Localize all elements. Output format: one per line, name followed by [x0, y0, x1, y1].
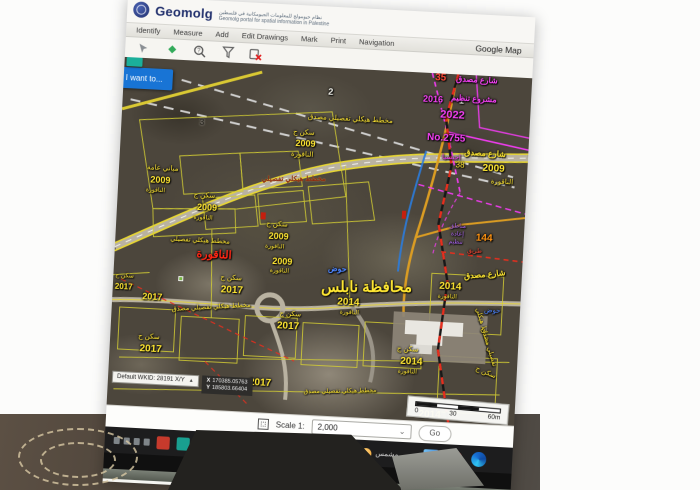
map-home-control[interactable]: [126, 57, 142, 67]
scale-tick: 60m: [487, 413, 500, 421]
red-point-marker: [402, 211, 406, 219]
menu-item-google-map[interactable]: Google Map: [475, 43, 522, 55]
edge-icon[interactable]: [471, 451, 487, 467]
extent-frame-icon[interactable]: [257, 418, 269, 430]
map-features-layer: [107, 57, 533, 426]
i-want-to-button[interactable]: I want to...: [109, 66, 173, 90]
app-subtitle: نظام جيومولج للمعلومات الجيومكانية في فل…: [219, 10, 330, 28]
language-icon[interactable]: [144, 438, 150, 445]
chevron-down-icon[interactable]: ⌄: [399, 427, 406, 436]
geomolg-logo-icon: [133, 1, 150, 18]
caret-up-icon: ▲: [188, 378, 193, 384]
photo-of-monitor: { "app":{ "title":"Geomolg", "subtitle_a…: [0, 0, 700, 490]
scale-tick: 0: [414, 407, 418, 414]
go-button[interactable]: Go: [418, 424, 451, 442]
xy-values: X170385.05763 Y185803.66404: [201, 375, 253, 396]
menu-item-add[interactable]: Add: [215, 30, 229, 40]
scale-label: Scale 1:: [276, 420, 305, 431]
menu-item-mark[interactable]: Mark: [301, 34, 318, 44]
identify-question-icon[interactable]: ?: [193, 44, 207, 58]
map-canvas[interactable]: 21335شارع مصدق2016مشروع تنظيم2022No.2755…: [107, 57, 533, 426]
poi-green-icon: [178, 276, 183, 281]
red-point-marker: [260, 212, 265, 219]
scale-tick: 30: [449, 410, 457, 418]
app-title: Geomolg: [155, 3, 213, 21]
battery-icon[interactable]: [134, 437, 140, 444]
lace-doily: [40, 442, 116, 478]
filter-funnel-icon[interactable]: [221, 45, 235, 59]
menu-item-navigation[interactable]: Navigation: [359, 37, 395, 48]
menu-item-edit-drawings[interactable]: Edit Drawings: [242, 31, 289, 42]
pointer-icon[interactable]: [137, 41, 151, 55]
menu-item-identify[interactable]: Identify: [136, 25, 161, 35]
menu-item-measure[interactable]: Measure: [173, 27, 203, 38]
menu-item-print[interactable]: Print: [330, 36, 346, 46]
monitor-screen: Geomolg نظام جيومولج للمعلومات الجيومكان…: [103, 0, 536, 490]
measure-area-icon[interactable]: [165, 43, 179, 57]
red-app-icon[interactable]: [156, 436, 170, 450]
clear-graphics-icon[interactable]: [249, 47, 263, 61]
